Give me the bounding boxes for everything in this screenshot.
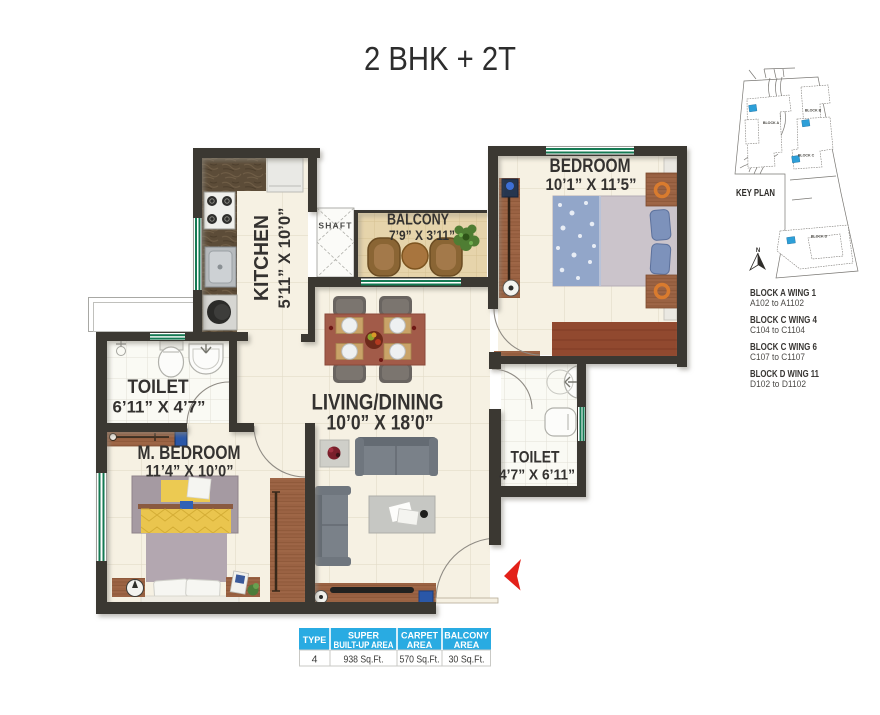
svg-text:A102 to A1102: A102 to A1102	[750, 298, 804, 309]
svg-text:BLOCK D: BLOCK D	[811, 235, 828, 239]
svg-text:11’4” X 10’0”: 11’4” X 10’0”	[146, 462, 234, 481]
svg-text:938 Sq.Ft.: 938 Sq.Ft.	[344, 654, 384, 666]
svg-text:10’1” X 11’5”: 10’1” X 11’5”	[546, 175, 637, 194]
svg-text:5’11” X 10’0”: 5’11” X 10’0”	[275, 208, 294, 309]
svg-text:KITCHEN: KITCHEN	[251, 215, 273, 301]
svg-text:C104 to C1104: C104 to C1104	[750, 325, 805, 336]
svg-text:BALCONY: BALCONY	[387, 212, 450, 229]
svg-text:TYPE: TYPE	[303, 635, 327, 645]
svg-text:570 Sq.Ft.: 570 Sq.Ft.	[400, 654, 440, 666]
svg-text:BLOCK C: BLOCK C	[798, 154, 815, 158]
svg-text:TOILET: TOILET	[128, 377, 189, 398]
svg-text:C107 to C1107: C107 to C1107	[750, 352, 805, 363]
svg-text:KEY PLAN: KEY PLAN	[736, 187, 775, 199]
svg-text:D102 to D1102: D102 to D1102	[750, 379, 806, 390]
svg-text:SUPER: SUPER	[348, 631, 380, 641]
svg-text:BLOCK A: BLOCK A	[763, 121, 780, 125]
svg-text:10’0” X 18’0”: 10’0” X 18’0”	[327, 412, 434, 435]
svg-text:TOILET: TOILET	[511, 449, 560, 467]
svg-text:CARPET: CARPET	[401, 631, 439, 641]
svg-text:4’7” X 6’11”: 4’7” X 6’11”	[499, 467, 575, 484]
svg-text:AREA: AREA	[454, 640, 480, 650]
svg-text:7’9” X 3’11”: 7’9” X 3’11”	[389, 227, 455, 243]
svg-text:2 BHK + 2T: 2 BHK + 2T	[364, 40, 516, 77]
svg-text:4: 4	[312, 654, 318, 666]
svg-text:SHAFT: SHAFT	[318, 221, 352, 231]
svg-text:BEDROOM: BEDROOM	[550, 156, 631, 177]
svg-text:6’11” X 4’7”: 6’11” X 4’7”	[113, 398, 206, 417]
svg-text:30 Sq.Ft.: 30 Sq.Ft.	[449, 654, 485, 666]
svg-text:BALCONY: BALCONY	[444, 631, 489, 641]
svg-text:AREA: AREA	[407, 640, 433, 650]
svg-text:BUILT-UP AREA: BUILT-UP AREA	[334, 640, 394, 650]
svg-text:BLOCK B: BLOCK B	[805, 109, 822, 113]
